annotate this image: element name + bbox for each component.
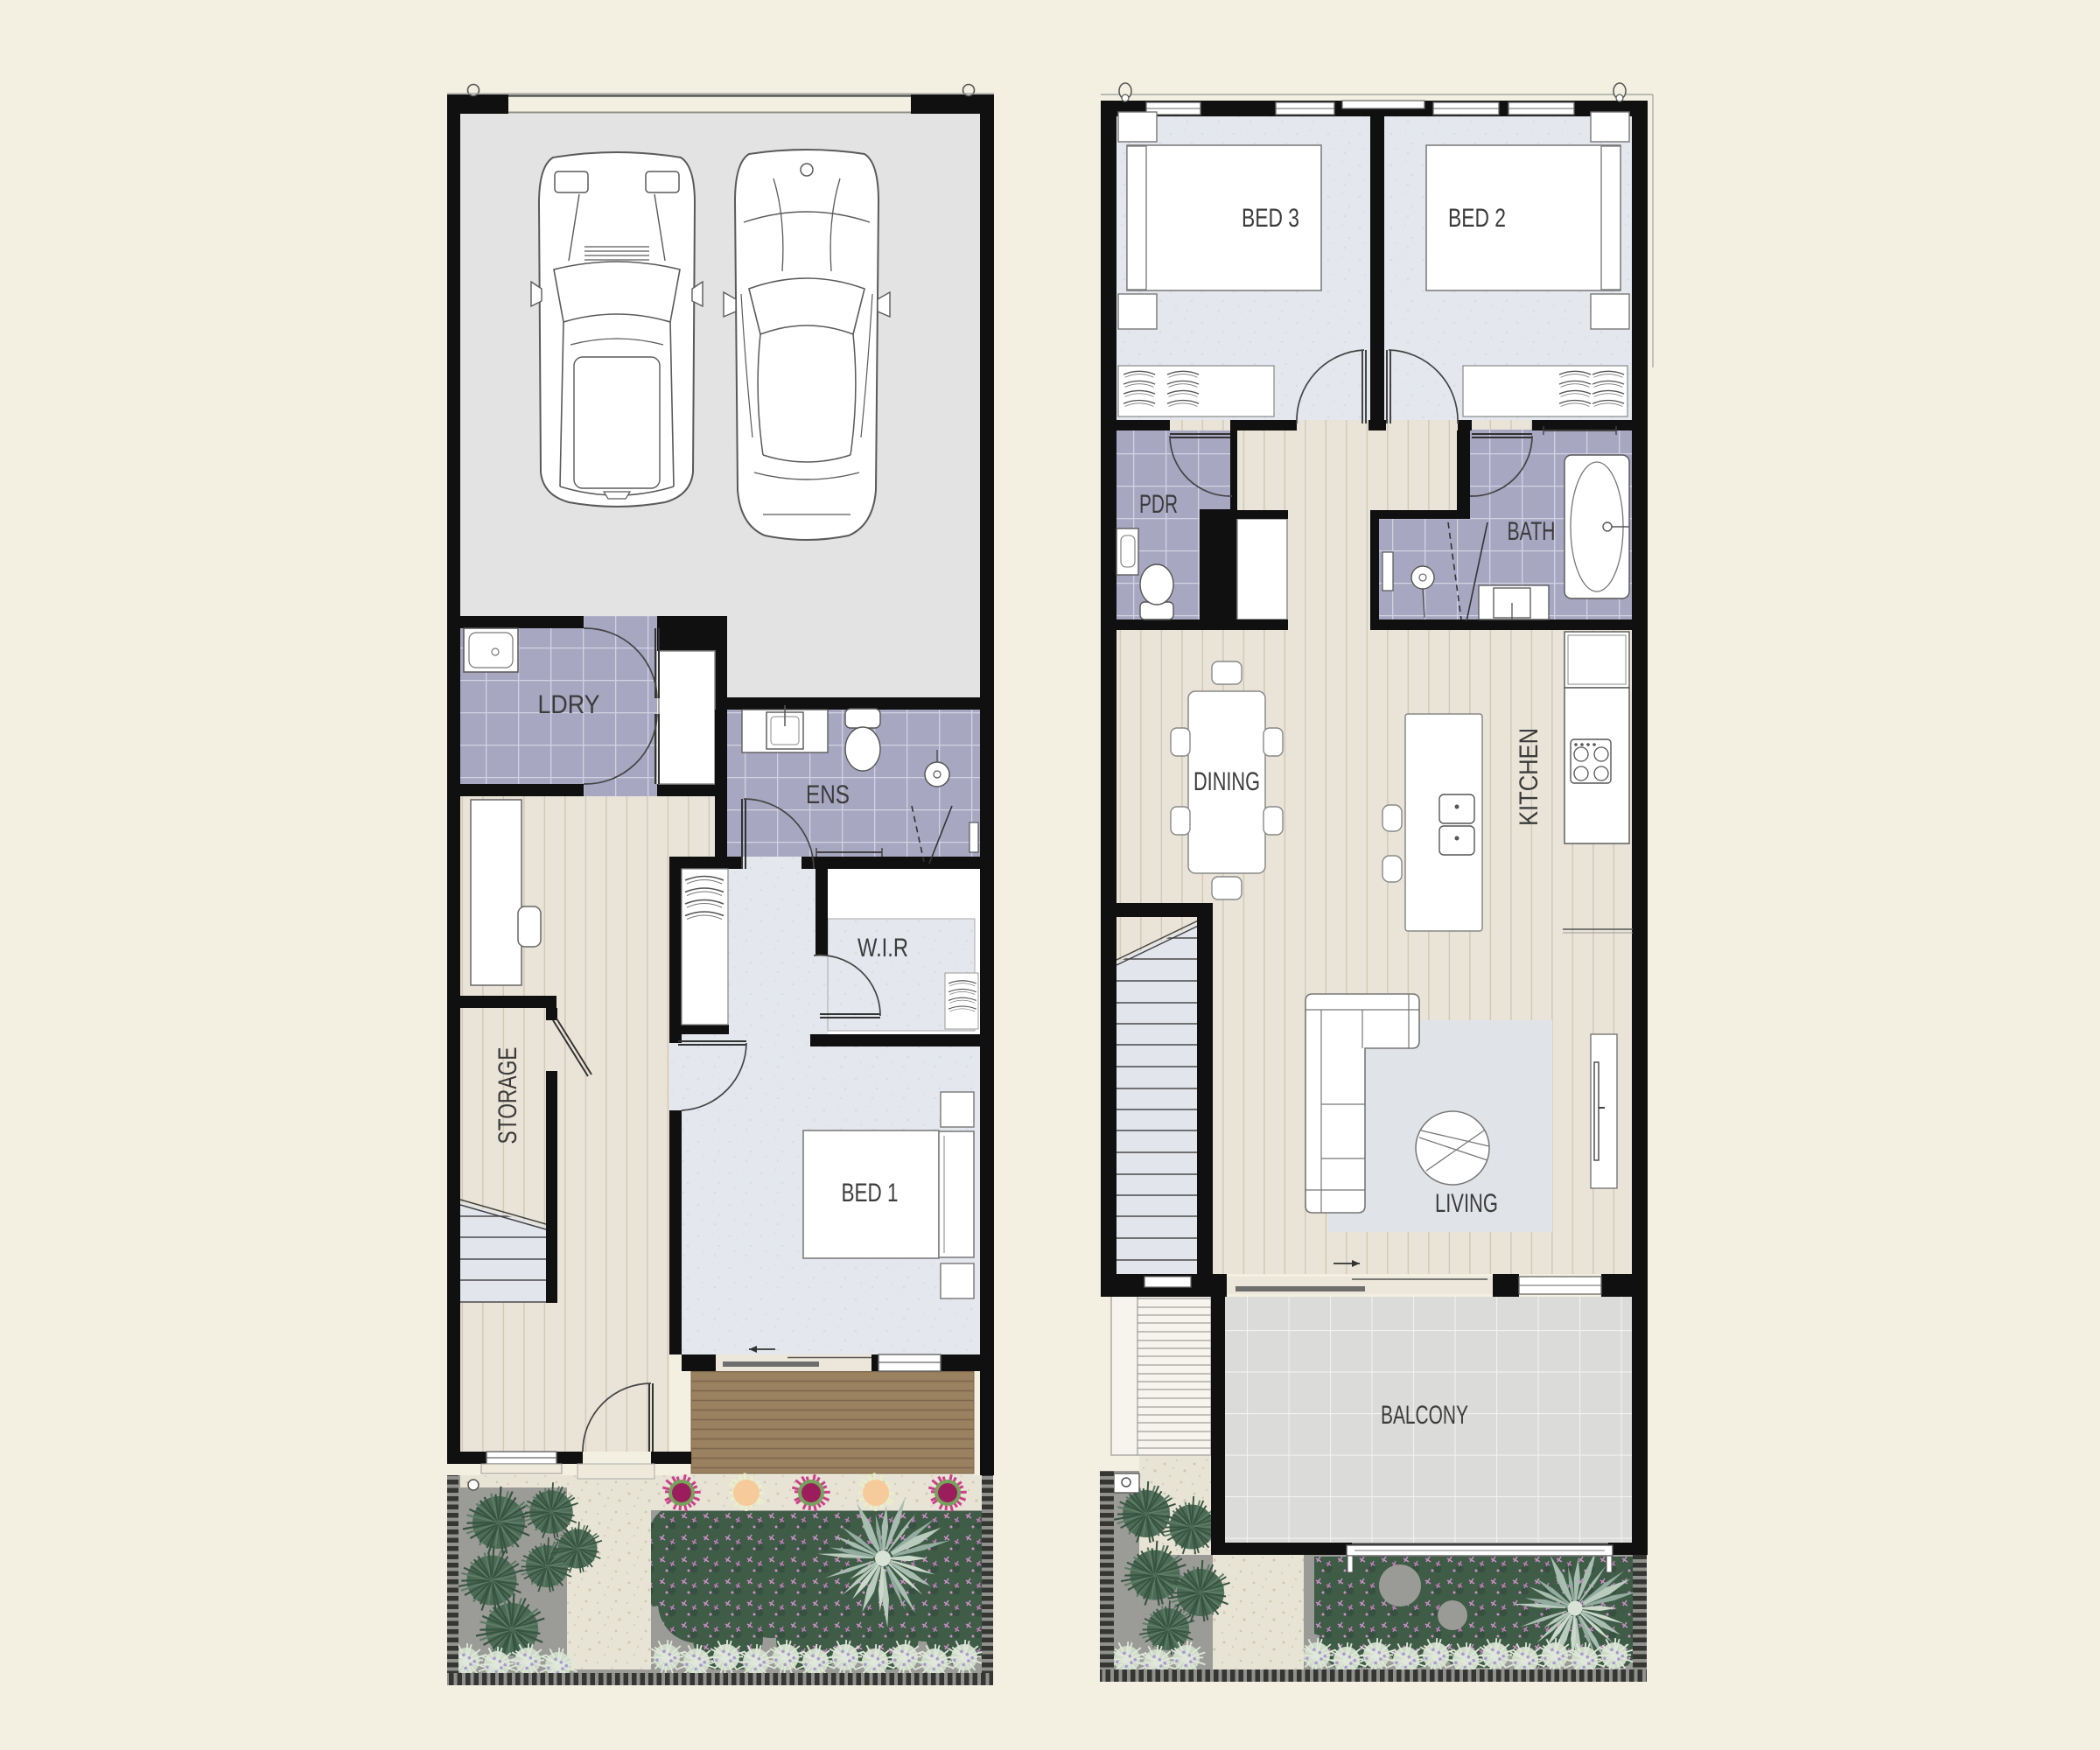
svg-text:BALCONY: BALCONY: [1381, 1401, 1468, 1430]
svg-text:BED 3: BED 3: [1242, 204, 1299, 233]
svg-text:KITCHEN: KITCHEN: [1515, 728, 1543, 826]
svg-text:ENS: ENS: [806, 780, 850, 809]
svg-text:BATH: BATH: [1508, 517, 1556, 546]
svg-text:BED 1: BED 1: [842, 1179, 899, 1207]
svg-text:W.I.R: W.I.R: [857, 934, 908, 962]
svg-text:DINING: DINING: [1193, 767, 1260, 796]
svg-text:LIVING: LIVING: [1435, 1189, 1498, 1218]
svg-text:PDR: PDR: [1139, 490, 1178, 519]
svg-text:STORAGE: STORAGE: [493, 1047, 522, 1144]
svg-text:LDRY: LDRY: [538, 690, 600, 719]
svg-text:BED 2: BED 2: [1448, 204, 1506, 233]
